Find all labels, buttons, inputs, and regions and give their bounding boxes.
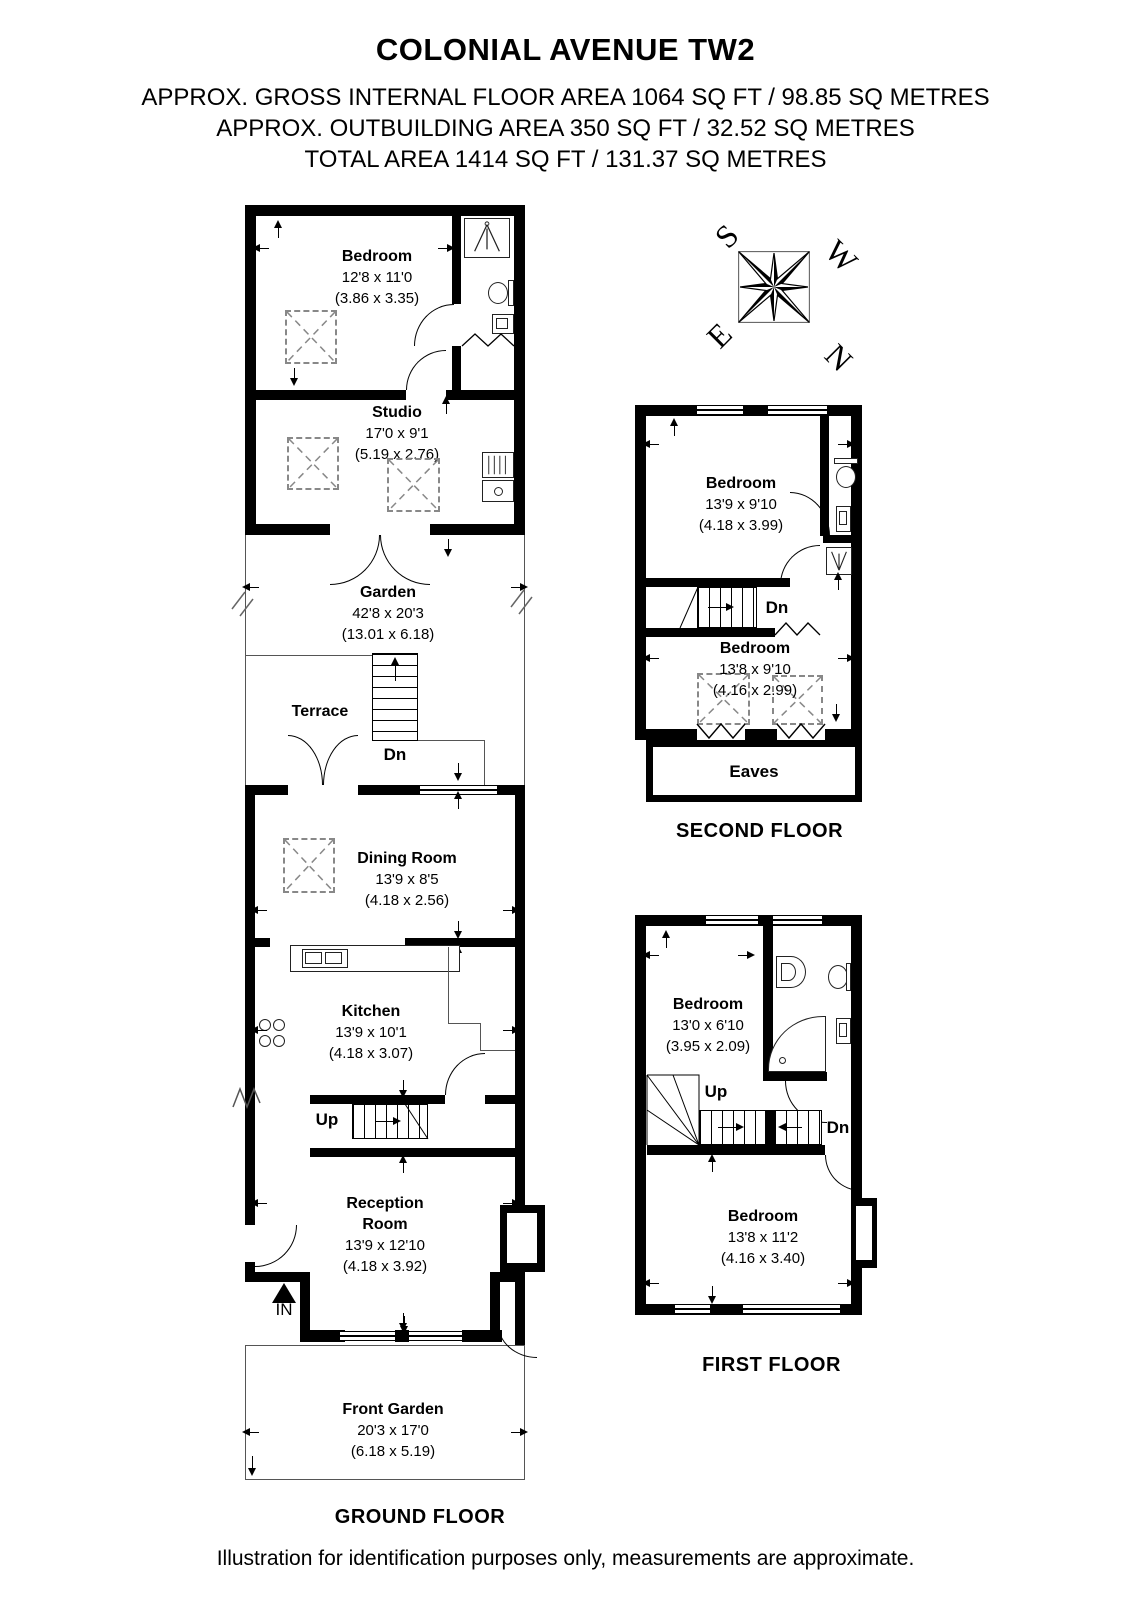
- compass-rose-icon: S W E N: [690, 205, 860, 375]
- dimension-arrow: [403, 1163, 404, 1173]
- double-door-arc: [380, 535, 430, 585]
- dormer-window-icon: [777, 722, 825, 740]
- wall: [823, 535, 851, 543]
- sink-icon: [836, 506, 851, 532]
- double-door-arc: [330, 535, 380, 585]
- bedroom-door-arc: [825, 1155, 861, 1191]
- folding-door-icon: [462, 332, 514, 348]
- compass-south-label: S: [707, 217, 745, 255]
- compass-north-label: N: [818, 336, 860, 378]
- room-name: Kitchen: [271, 1001, 471, 1022]
- dining-room-label: Dining Room 13'9 x 8'5 (4.18 x 2.56): [307, 848, 507, 911]
- dimension-arrow: [666, 938, 667, 948]
- area-line-2: APPROX. OUTBUILDING AREA 350 SQ FT / 32.…: [0, 115, 1131, 143]
- dimension-arrow: [250, 1432, 259, 1433]
- dimension-arrow: [258, 1203, 267, 1204]
- reception-room-label: Reception Room 13'9 x 12'10 (4.18 x 3.92…: [330, 1193, 440, 1277]
- dimension-arrow: [838, 580, 839, 590]
- first-floor-label: FIRST FLOOR: [658, 1354, 885, 1377]
- room-dims-ft: 13'8 x 11'2: [663, 1227, 863, 1248]
- dimension-arrow: [404, 1316, 405, 1326]
- fireplace: [507, 1213, 537, 1263]
- room-name: Reception Room: [330, 1193, 440, 1235]
- double-door-opening: [330, 524, 430, 535]
- terrace-stairs-dn-label: Dn: [375, 745, 415, 765]
- stair-direction-arrow: [395, 665, 396, 681]
- ground-floor-plan: Dining Room 13'9 x 8'5 (4.18 x 2.56) Kit…: [245, 785, 545, 1345]
- sink-icon: [776, 956, 806, 988]
- room-dims-m: (3.95 x 2.09): [643, 1036, 773, 1057]
- double-door-arc: [288, 735, 323, 785]
- stair-direction-arrow: [786, 1127, 802, 1128]
- dimension-arrow: [836, 704, 837, 714]
- wall: [766, 1110, 774, 1145]
- wall: [485, 1095, 525, 1104]
- sink-icon: [492, 314, 514, 334]
- skylight-icon: [285, 310, 337, 364]
- sink-icon: [482, 480, 514, 502]
- window-icon: [743, 1304, 840, 1315]
- room-name: Studio: [297, 402, 497, 423]
- dimension-arrow: [278, 228, 279, 238]
- window-icon: [773, 915, 822, 926]
- boundary-line: [524, 535, 525, 785]
- garden-label: Garden 42'8 x 20'3 (13.01 x 6.18): [268, 582, 508, 645]
- compass-west-label: W: [818, 232, 865, 279]
- corner-bath-icon: [768, 1016, 826, 1072]
- second-floor-bedroom-rear-label: Bedroom 13'8 x 9'10 (4.16 x 2.99): [655, 638, 855, 701]
- garden-area: Garden 42'8 x 20'3 (13.01 x 6.18) Terrac…: [245, 535, 525, 785]
- room-dims-m: (6.18 x 5.19): [293, 1441, 493, 1462]
- stair-winder-line: [680, 587, 698, 628]
- stair-winder-lines: [647, 1075, 699, 1145]
- dimension-arrow: [260, 248, 269, 249]
- wall: [310, 1148, 525, 1157]
- dimension-arrow: [448, 539, 449, 549]
- room-dims-m: (4.18 x 2.56): [307, 890, 507, 911]
- skylight-icon: [387, 458, 440, 512]
- room-dims-ft: 12'8 x 11'0: [277, 267, 477, 288]
- window-icon: [675, 1304, 710, 1315]
- ground-floor-label: GROUND FLOOR: [265, 1506, 575, 1529]
- dimension-arrow: [446, 404, 447, 414]
- kitchen-label: Kitchen 13'9 x 10'1 (4.18 x 3.07): [271, 1001, 471, 1064]
- recess-line: [480, 1050, 515, 1051]
- entrance-in-label: IN: [264, 1300, 304, 1320]
- terrace-label: Terrace: [255, 703, 385, 721]
- stair-direction-arrow: [718, 1127, 736, 1128]
- second-floor-plan: Bedroom 13'9 x 9'10 (4.18 x 3.99) Dn: [635, 405, 862, 740]
- recess-line: [448, 1023, 480, 1024]
- dimension-arrow: [838, 658, 847, 659]
- room-name: Bedroom: [655, 638, 855, 659]
- room-dims-ft: 13'9 x 8'5: [307, 869, 507, 890]
- room-dims-m: (4.18 x 3.92): [330, 1256, 440, 1277]
- dimension-arrow: [838, 1283, 847, 1284]
- room-name: Front Garden: [293, 1399, 493, 1420]
- recess-line: [480, 1023, 481, 1050]
- room-dims-ft: 42'8 x 20'3: [268, 603, 508, 624]
- disclaimer-note: Illustration for identification purposes…: [0, 1547, 1131, 1571]
- room-dims-ft: 13'9 x 12'10: [330, 1235, 440, 1256]
- dimension-arrow: [458, 799, 459, 809]
- wall: [646, 578, 790, 587]
- page-title: COLONIAL AVENUE TW2: [0, 32, 1131, 68]
- wall: [300, 1330, 345, 1342]
- room-dims-ft: 13'8 x 9'10: [655, 659, 855, 680]
- room-dims-ft: 20'3 x 17'0: [293, 1420, 493, 1441]
- outbuilding-plan: Bedroom 12'8 x 11'0 (3.86 x 3.35) Studio…: [245, 205, 525, 535]
- front-garden-label: Front Garden 20'3 x 17'0 (6.18 x 5.19): [293, 1399, 493, 1462]
- dimension-arrow: [503, 910, 512, 911]
- room-name: Bedroom: [641, 473, 841, 494]
- room-dims-m: (4.18 x 3.07): [271, 1043, 471, 1064]
- terrace-edge-line: [245, 655, 373, 656]
- outbuilding-bedroom-label: Bedroom 12'8 x 11'0 (3.86 x 3.35): [277, 246, 477, 309]
- wall: [256, 390, 406, 400]
- dimension-arrow: [503, 1203, 512, 1204]
- first-floor-plan: Bedroom 13'0 x 6'10 (3.95 x 2.09) Up: [635, 915, 862, 1315]
- dimension-arrow: [650, 658, 659, 659]
- bay-window-icon: [340, 1331, 395, 1341]
- toilet-cistern: [846, 963, 851, 991]
- recess-line: [448, 947, 449, 1023]
- wall: [490, 1272, 525, 1282]
- dimension-arrow: [252, 1456, 253, 1468]
- bay-window-icon: [409, 1331, 462, 1341]
- terrace-edge-line: [484, 740, 485, 785]
- room-dims-m: (13.01 x 6.18): [268, 624, 508, 645]
- toilet-icon: [828, 965, 848, 989]
- toilet-icon: [836, 466, 856, 488]
- dimension-arrow: [511, 587, 520, 588]
- room-name: Dining Room: [307, 848, 507, 869]
- dimension-arrow: [712, 1162, 713, 1172]
- wall-break-icon: [233, 1083, 261, 1111]
- wall: [462, 1330, 502, 1342]
- toilet-cistern: [834, 458, 858, 464]
- compass-east-label: E: [699, 316, 738, 355]
- area-line-1: APPROX. GROSS INTERNAL FLOOR AREA 1064 S…: [0, 84, 1131, 112]
- window-icon: [697, 405, 743, 416]
- dimension-arrow: [403, 1080, 404, 1090]
- room-name: Garden: [268, 582, 508, 603]
- skylight-icon: [283, 838, 335, 893]
- dimension-arrow: [438, 248, 447, 249]
- wall: [646, 628, 775, 637]
- toilet-cistern: [508, 280, 514, 306]
- dimension-arrow: [650, 1283, 659, 1284]
- stair-direction-arrow: [708, 607, 726, 608]
- eaves-area: Eaves: [646, 740, 862, 802]
- studio-door-arc: [406, 350, 446, 390]
- room-dims-ft: 13'0 x 6'10: [643, 1015, 773, 1036]
- room-dims-m: (4.16 x 2.99): [655, 680, 855, 701]
- break-mark-icon: [511, 588, 537, 616]
- break-mark-icon: [232, 590, 258, 618]
- skylight-icon: [287, 437, 339, 490]
- dimension-arrow: [738, 955, 747, 956]
- wall: [255, 938, 270, 947]
- dimension-arrow: [258, 1030, 267, 1031]
- dimension-arrow: [294, 368, 295, 378]
- fireplace: [856, 1206, 872, 1260]
- room-dims-m: (4.16 x 3.40): [663, 1248, 863, 1269]
- dormer-window-icon: [697, 722, 745, 740]
- shower-tray: [826, 547, 852, 575]
- eaves-label: Eaves: [653, 762, 855, 782]
- room-dims-m: (3.86 x 3.35): [277, 288, 477, 309]
- stair-winder-line: [405, 1104, 428, 1139]
- wall: [763, 1072, 827, 1081]
- dimension-arrow: [458, 921, 459, 931]
- wall: [446, 390, 514, 400]
- window-icon: [768, 405, 827, 416]
- kitchen-sink-icon: [302, 949, 348, 968]
- stairs-up-label: Up: [694, 1082, 738, 1102]
- dimension-arrow: [838, 444, 847, 445]
- wall: [245, 785, 255, 1225]
- dimension-arrow: [511, 1432, 520, 1433]
- floorplan-page: COLONIAL AVENUE TW2 APPROX. GROSS INTERN…: [0, 0, 1131, 1600]
- door-opening: [288, 785, 358, 795]
- room-name: Bedroom: [663, 1206, 863, 1227]
- first-floor-bedroom-front-label: Bedroom 13'0 x 6'10 (3.95 x 2.09): [643, 994, 773, 1057]
- toilet-icon: [488, 282, 508, 304]
- double-door-arc: [323, 735, 358, 785]
- landing-door-arc: [780, 545, 820, 585]
- wall: [310, 1095, 445, 1104]
- dimension-arrow: [258, 910, 267, 911]
- wall: [647, 1145, 825, 1155]
- dimension-arrow: [650, 955, 659, 956]
- sink-icon: [836, 1018, 851, 1044]
- second-floor-label: SECOND FLOOR: [646, 820, 873, 843]
- terrace-edge-line: [418, 740, 485, 741]
- dimension-arrow: [674, 426, 675, 436]
- dimension-arrow: [650, 444, 659, 445]
- room-dims-ft: 13'9 x 10'1: [271, 1022, 471, 1043]
- dimension-arrow: [458, 763, 459, 773]
- stairs-up-label: Up: [305, 1110, 349, 1130]
- dimension-arrow: [503, 1030, 512, 1031]
- dimension-arrow: [250, 587, 259, 588]
- boundary-line: [245, 535, 246, 785]
- hob-icon: [482, 452, 514, 478]
- stairs-dn-label: Dn: [756, 598, 798, 618]
- window-icon: [706, 915, 758, 926]
- area-line-3: TOTAL AREA 1414 SQ FT / 131.37 SQ METRES: [0, 146, 1131, 174]
- first-floor-bedroom-rear-label: Bedroom 13'8 x 11'2 (4.16 x 3.40): [663, 1206, 863, 1269]
- shower-room-door-arc: [414, 304, 454, 346]
- folding-door-icon: [775, 620, 821, 637]
- stair-direction-arrow: [375, 1121, 393, 1122]
- wall: [515, 785, 525, 1205]
- room-name: Bedroom: [643, 994, 773, 1015]
- stairs-dn-label: Dn: [818, 1118, 858, 1138]
- dimension-arrow: [712, 1286, 713, 1296]
- front-door-arc: [255, 1225, 297, 1267]
